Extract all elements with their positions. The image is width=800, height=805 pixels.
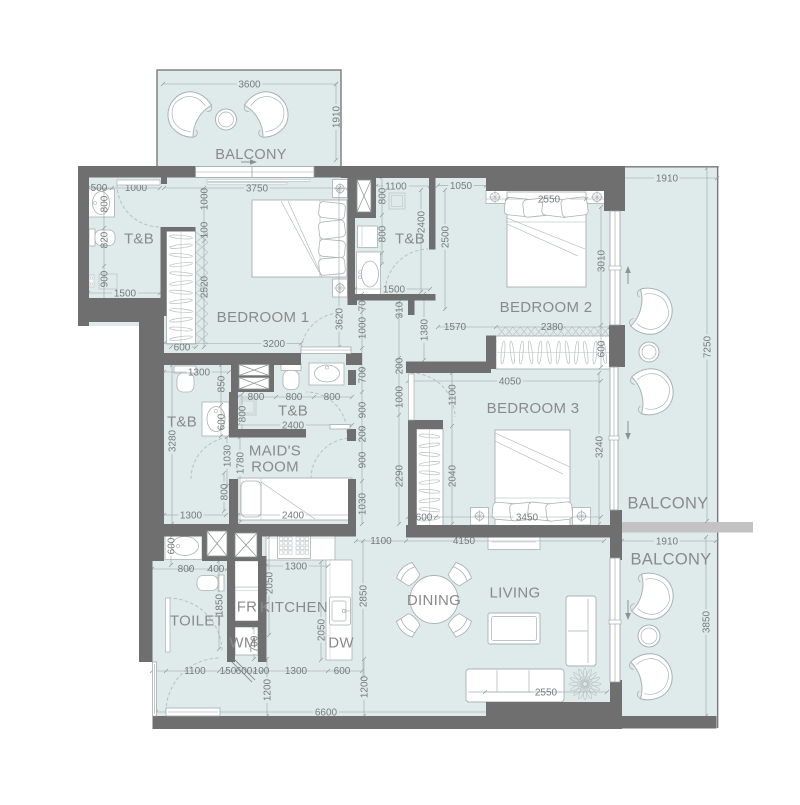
svg-text:FR: FR <box>237 599 258 616</box>
svg-text:1000: 1000 <box>395 385 406 408</box>
svg-text:600: 600 <box>416 513 433 524</box>
svg-text:310: 310 <box>395 301 406 318</box>
svg-text:800: 800 <box>100 195 111 212</box>
svg-text:4150: 4150 <box>453 536 476 547</box>
svg-text:800: 800 <box>378 225 389 242</box>
svg-text:3450: 3450 <box>516 513 539 524</box>
svg-text:1910: 1910 <box>656 174 679 185</box>
svg-text:3600: 3600 <box>238 80 261 91</box>
svg-text:T&B: T&B <box>167 414 197 431</box>
svg-text:600: 600 <box>217 413 228 430</box>
svg-text:3280: 3280 <box>168 429 179 452</box>
svg-text:850: 850 <box>217 375 228 392</box>
svg-text:1030: 1030 <box>358 492 369 515</box>
svg-text:3750: 3750 <box>246 184 269 195</box>
svg-text:4050: 4050 <box>499 377 522 388</box>
svg-text:1380: 1380 <box>420 318 431 341</box>
svg-text:1300: 1300 <box>285 666 308 677</box>
svg-text:3240: 3240 <box>595 435 606 458</box>
svg-text:1100: 1100 <box>385 182 407 193</box>
svg-text:1300: 1300 <box>285 562 308 573</box>
svg-text:TOILET: TOILET <box>170 613 224 630</box>
svg-text:1910: 1910 <box>656 537 679 548</box>
svg-text:200: 200 <box>395 357 406 374</box>
svg-text:T&B: T&B <box>278 403 308 420</box>
svg-text:BALCONY: BALCONY <box>215 147 286 163</box>
svg-text:WM: WM <box>229 635 256 652</box>
svg-text:900: 900 <box>100 270 111 287</box>
svg-text:KITCHEN: KITCHEN <box>260 599 328 616</box>
svg-text:BEDROOM 2: BEDROOM 2 <box>500 299 593 316</box>
svg-text:1780: 1780 <box>236 451 247 474</box>
svg-text:1050: 1050 <box>450 181 473 192</box>
svg-text:ROOM: ROOM <box>251 459 299 476</box>
svg-text:T&B: T&B <box>124 231 154 248</box>
svg-text:2550: 2550 <box>538 195 561 206</box>
svg-text:1100: 1100 <box>370 536 392 547</box>
svg-text:BEDROOM 1: BEDROOM 1 <box>217 309 310 326</box>
svg-text:2290: 2290 <box>395 464 406 487</box>
svg-text:7250: 7250 <box>703 335 714 358</box>
svg-text:800: 800 <box>324 392 341 403</box>
svg-text:800: 800 <box>220 483 231 500</box>
svg-text:150: 150 <box>220 666 237 677</box>
svg-text:1500: 1500 <box>114 289 137 300</box>
svg-text:3850: 3850 <box>702 610 713 633</box>
svg-text:BALCONY: BALCONY <box>631 551 712 569</box>
svg-text:1300: 1300 <box>188 368 211 379</box>
svg-text:1000: 1000 <box>358 316 369 339</box>
svg-text:100: 100 <box>200 221 211 238</box>
svg-text:2040: 2040 <box>448 464 459 487</box>
svg-text:2520: 2520 <box>200 275 211 298</box>
svg-text:MAID'S: MAID'S <box>249 443 301 460</box>
svg-text:2500: 2500 <box>441 225 452 248</box>
svg-text:800: 800 <box>378 187 389 204</box>
svg-text:3620: 3620 <box>335 307 346 330</box>
svg-text:600: 600 <box>597 340 608 357</box>
svg-text:2400: 2400 <box>282 511 305 522</box>
svg-text:900: 900 <box>358 451 369 468</box>
svg-text:900: 900 <box>358 401 369 418</box>
svg-text:600: 600 <box>167 537 178 554</box>
svg-text:700: 700 <box>358 366 369 383</box>
svg-text:820: 820 <box>100 231 111 248</box>
svg-text:200: 200 <box>358 425 369 442</box>
svg-text:1030: 1030 <box>223 444 234 467</box>
svg-text:2380: 2380 <box>541 322 564 333</box>
svg-text:T&B: T&B <box>395 231 425 248</box>
svg-text:1100: 1100 <box>184 666 206 677</box>
svg-text:3200: 3200 <box>263 339 286 350</box>
svg-text:600: 600 <box>334 666 351 677</box>
svg-text:400: 400 <box>208 564 225 575</box>
svg-text:600: 600 <box>236 666 253 677</box>
svg-text:800: 800 <box>286 392 303 403</box>
svg-text:2850: 2850 <box>359 584 370 607</box>
svg-text:800: 800 <box>178 564 195 575</box>
svg-text:2050: 2050 <box>317 618 328 641</box>
svg-text:3010: 3010 <box>597 249 608 272</box>
svg-text:BALCONY: BALCONY <box>628 495 709 513</box>
svg-text:LIVING: LIVING <box>490 585 541 602</box>
svg-text:600: 600 <box>174 343 191 354</box>
svg-text:1100: 1100 <box>448 384 459 406</box>
svg-text:800: 800 <box>248 392 265 403</box>
svg-text:1910: 1910 <box>332 105 343 128</box>
svg-text:DINING: DINING <box>407 592 461 609</box>
svg-text:2550: 2550 <box>535 688 558 699</box>
svg-text:DW: DW <box>328 635 354 652</box>
svg-text:1000: 1000 <box>200 187 211 210</box>
svg-text:1570: 1570 <box>444 322 467 333</box>
svg-text:1500: 1500 <box>383 285 406 296</box>
svg-text:BEDROOM 3: BEDROOM 3 <box>487 400 580 417</box>
svg-text:800: 800 <box>238 405 249 422</box>
svg-text:1200: 1200 <box>263 678 274 701</box>
svg-text:1300: 1300 <box>180 511 203 522</box>
